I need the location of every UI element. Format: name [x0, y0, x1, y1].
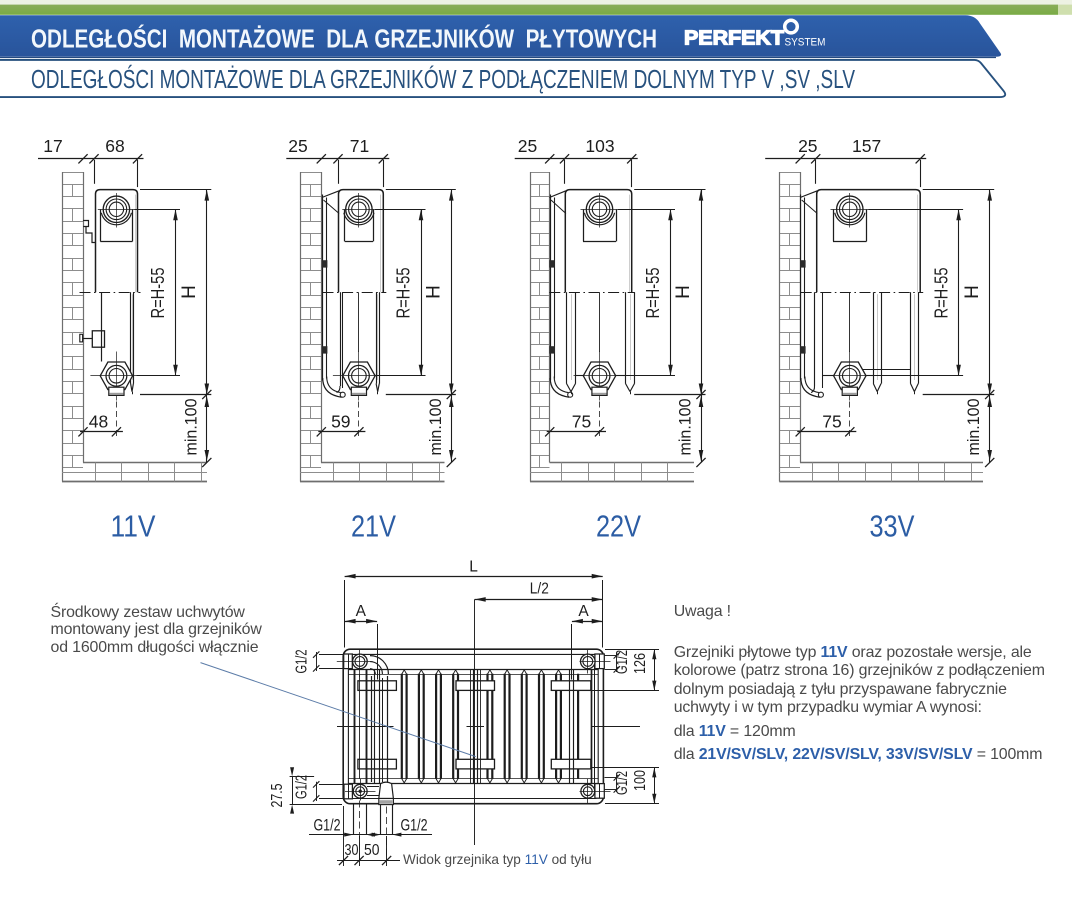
- svg-text:L: L: [469, 559, 478, 576]
- svg-text:71: 71: [350, 136, 369, 156]
- svg-text:ODLEGŁOŚCI MONTAŻOWE DLA GRZ: ODLEGŁOŚCI MONTAŻOWE DLA GRZEJNIKÓW PŁYT…: [31, 23, 657, 53]
- svg-text:H: H: [424, 285, 445, 299]
- svg-text:25: 25: [518, 136, 537, 156]
- svg-text:L/2: L/2: [530, 581, 549, 598]
- svg-text:R=H-55: R=H-55: [393, 268, 414, 319]
- svg-text:SYSTEM: SYSTEM: [785, 37, 826, 49]
- svg-text:ODLEGŁOŚCI MONTAŻOWE DLA GRZEJ: ODLEGŁOŚCI MONTAŻOWE DLA GRZEJNIKÓW Z PO…: [31, 64, 855, 94]
- svg-text:A: A: [356, 603, 367, 620]
- svg-text:48: 48: [89, 412, 108, 432]
- svg-text:157: 157: [852, 136, 881, 156]
- svg-text:G1/2: G1/2: [314, 816, 341, 835]
- svg-text:R=H-55: R=H-55: [642, 268, 663, 319]
- svg-text:17: 17: [43, 136, 62, 156]
- svg-text:min.100: min.100: [677, 399, 695, 456]
- svg-text:H: H: [179, 285, 200, 299]
- svg-text:30: 30: [345, 842, 359, 859]
- svg-text:G1/2: G1/2: [614, 650, 631, 674]
- svg-text:PERFEKT: PERFEKT: [684, 26, 784, 49]
- svg-text:68: 68: [105, 136, 124, 156]
- svg-text:A: A: [578, 603, 589, 620]
- svg-text:min.100: min.100: [965, 398, 983, 455]
- svg-text:103: 103: [585, 136, 614, 156]
- svg-text:H: H: [673, 285, 694, 299]
- svg-text:59: 59: [331, 412, 350, 432]
- svg-text:R=H-55: R=H-55: [147, 268, 168, 319]
- svg-text:25: 25: [288, 136, 307, 156]
- svg-text:G1/2: G1/2: [294, 775, 311, 799]
- svg-text:22V: 22V: [596, 509, 641, 544]
- svg-text:100: 100: [632, 770, 649, 791]
- svg-text:126: 126: [632, 653, 649, 674]
- svg-text:min.100: min.100: [427, 399, 445, 456]
- svg-text:50: 50: [364, 842, 380, 859]
- svg-text:75: 75: [822, 412, 841, 432]
- svg-text:75: 75: [572, 412, 591, 432]
- svg-text:27.5: 27.5: [269, 784, 286, 808]
- svg-text:G1/2: G1/2: [294, 650, 311, 674]
- svg-text:G1/2: G1/2: [614, 771, 631, 795]
- svg-text:R=H-55: R=H-55: [930, 268, 951, 319]
- svg-text:11V: 11V: [111, 509, 156, 544]
- svg-text:G1/2: G1/2: [401, 816, 428, 835]
- svg-text:min.100: min.100: [182, 399, 200, 456]
- svg-text:33V: 33V: [870, 509, 915, 544]
- svg-text:25: 25: [798, 136, 817, 156]
- svg-text:H: H: [962, 285, 983, 299]
- svg-text:21V: 21V: [351, 509, 396, 544]
